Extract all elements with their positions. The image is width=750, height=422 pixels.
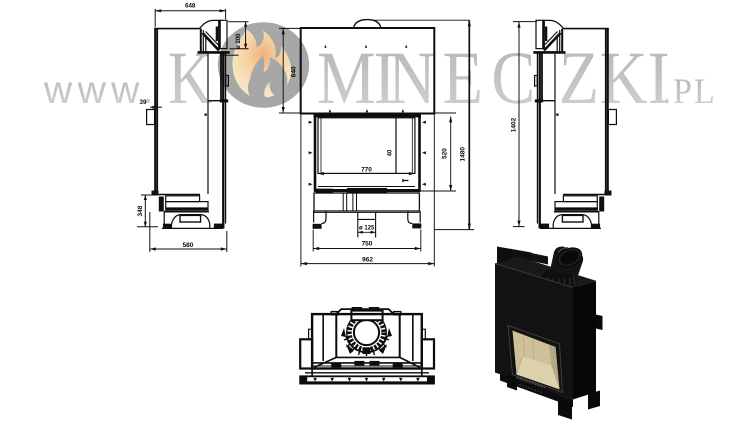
svg-text:640: 640 xyxy=(291,66,298,77)
svg-text:348: 348 xyxy=(137,205,144,216)
svg-text:580: 580 xyxy=(183,242,194,249)
svg-text:648: 648 xyxy=(185,3,196,10)
svg-text:.PL: .PL xyxy=(663,71,717,111)
svg-text:520: 520 xyxy=(442,148,449,159)
svg-text:770: 770 xyxy=(361,167,372,174)
svg-text:1402: 1402 xyxy=(511,117,518,132)
svg-text:MINECZKI: MINECZKI xyxy=(317,37,670,120)
svg-text:ø 200: ø 200 xyxy=(236,33,242,49)
svg-text:ø 125: ø 125 xyxy=(359,226,375,232)
svg-text:750: 750 xyxy=(362,241,373,248)
svg-text:962: 962 xyxy=(362,257,373,264)
svg-text:39: 39 xyxy=(140,99,147,106)
svg-text:40: 40 xyxy=(388,149,394,156)
svg-text:1480: 1480 xyxy=(459,147,466,162)
